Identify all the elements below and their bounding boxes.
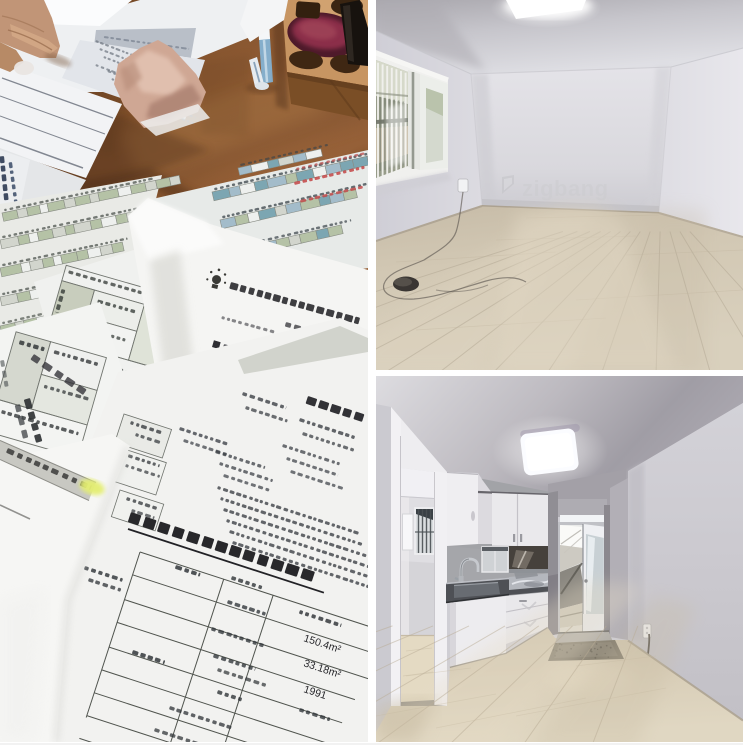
svg-text:zigbang: zigbang [522, 176, 609, 201]
